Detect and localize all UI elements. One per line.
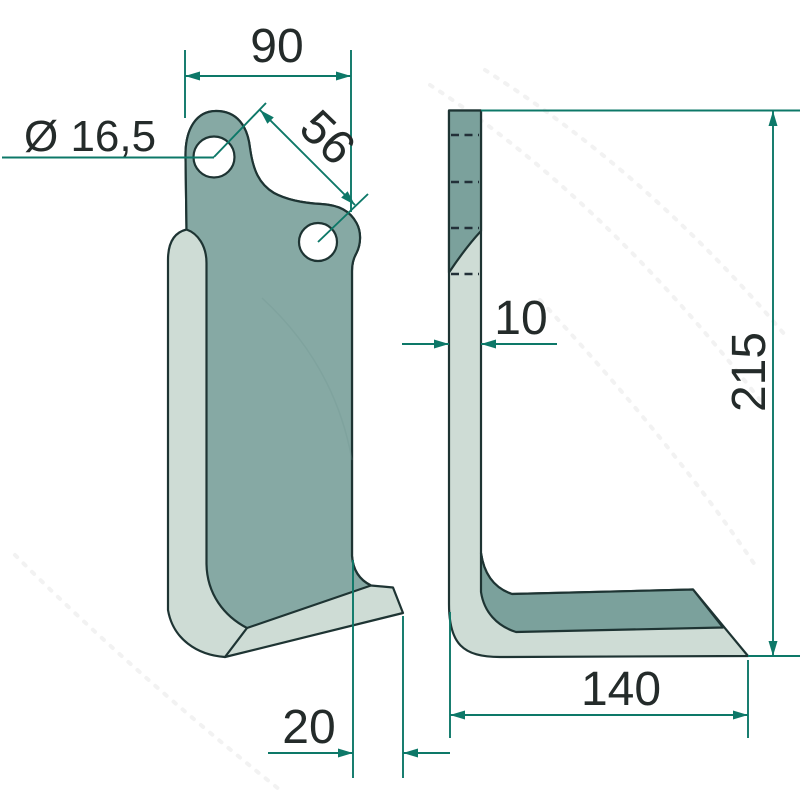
arrowhead-right [403,749,418,758]
arrowhead-right [733,711,748,720]
watermark-swirls [15,70,785,790]
side-foot-dark-face [481,553,723,632]
technical-drawing-canvas: 90 Ø 16,5 56 10 215 140 [0,0,800,800]
dim-label-hole-diameter: Ø 16,5 [24,112,156,161]
dim-label-top-width: 90 [250,20,303,73]
arrowhead-top [769,111,778,126]
dim-label-lip-offset: 20 [282,701,335,754]
arrowhead-left [434,340,449,349]
arrowhead-right [336,72,351,81]
arrowhead-left [450,711,465,720]
arrowhead-left [338,749,353,758]
front-face [186,111,372,628]
side-view [449,111,748,658]
arrowhead-left [185,72,200,81]
dim-label-thickness: 10 [494,292,547,345]
dim-height: 215 [481,111,800,657]
dim-label-hole-spacing: 56 [289,100,364,175]
front-view [168,111,403,657]
dim-label-height: 215 [723,332,776,412]
dim-hole-diameter: Ø 16,5 [2,112,214,161]
blade-dimension-drawing: 90 Ø 16,5 56 10 215 140 [0,0,800,800]
side-silhouette-edge-surface [449,111,748,658]
dim-label-foot-length: 140 [581,663,661,716]
arrowhead-bottom [769,641,778,656]
